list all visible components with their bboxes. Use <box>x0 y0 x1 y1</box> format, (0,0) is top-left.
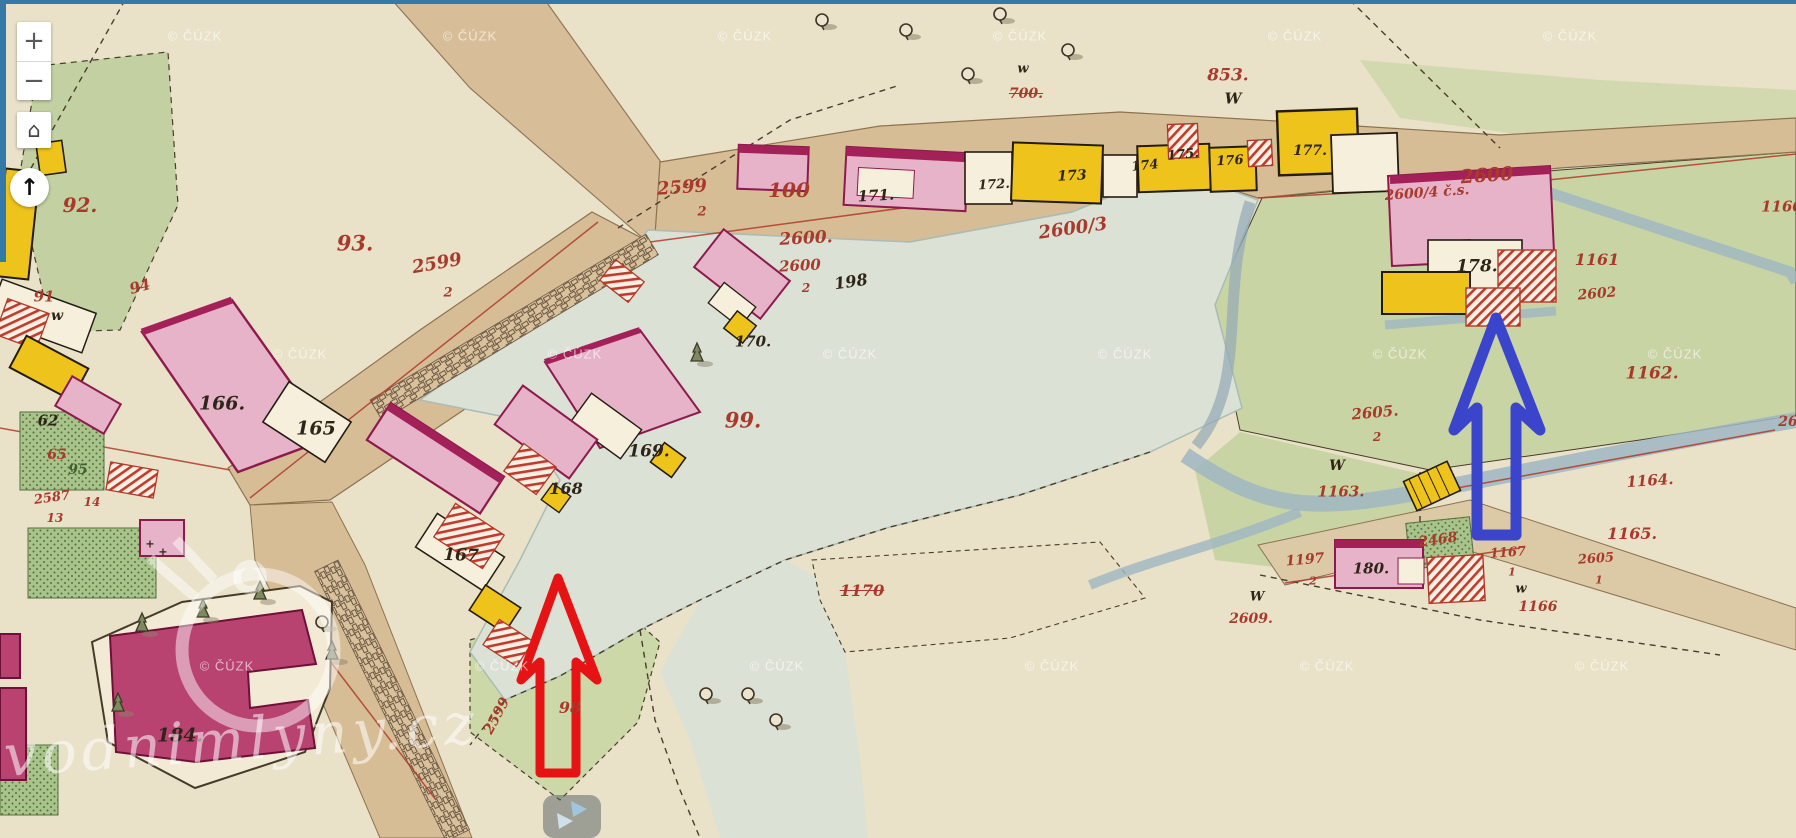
plus-icon: + <box>23 26 45 56</box>
zoom-out-button[interactable]: − <box>17 62 51 101</box>
zoom-control[interactable]: + − <box>17 22 51 100</box>
minus-icon: − <box>23 66 45 96</box>
viewer-border-top <box>0 0 1796 4</box>
mill-complex-178 <box>1382 166 1556 326</box>
garden <box>28 528 156 598</box>
historic-cadastral-map[interactable] <box>0 0 1796 838</box>
attribution-glyph-icon <box>543 795 601 838</box>
map-viewport[interactable]: 92.91w9493.166.16562659525871413184.1671… <box>0 0 1796 838</box>
zoom-in-button[interactable]: + <box>17 22 51 62</box>
viewer-border-left <box>0 0 6 262</box>
home-extent-button[interactable]: ⌂ <box>17 112 51 148</box>
north-arrow-button[interactable]: ↑ <box>10 168 49 207</box>
up-arrow-icon: ↑ <box>20 175 39 201</box>
attribution-button[interactable] <box>543 795 601 838</box>
home-icon: ⌂ <box>27 118 40 142</box>
